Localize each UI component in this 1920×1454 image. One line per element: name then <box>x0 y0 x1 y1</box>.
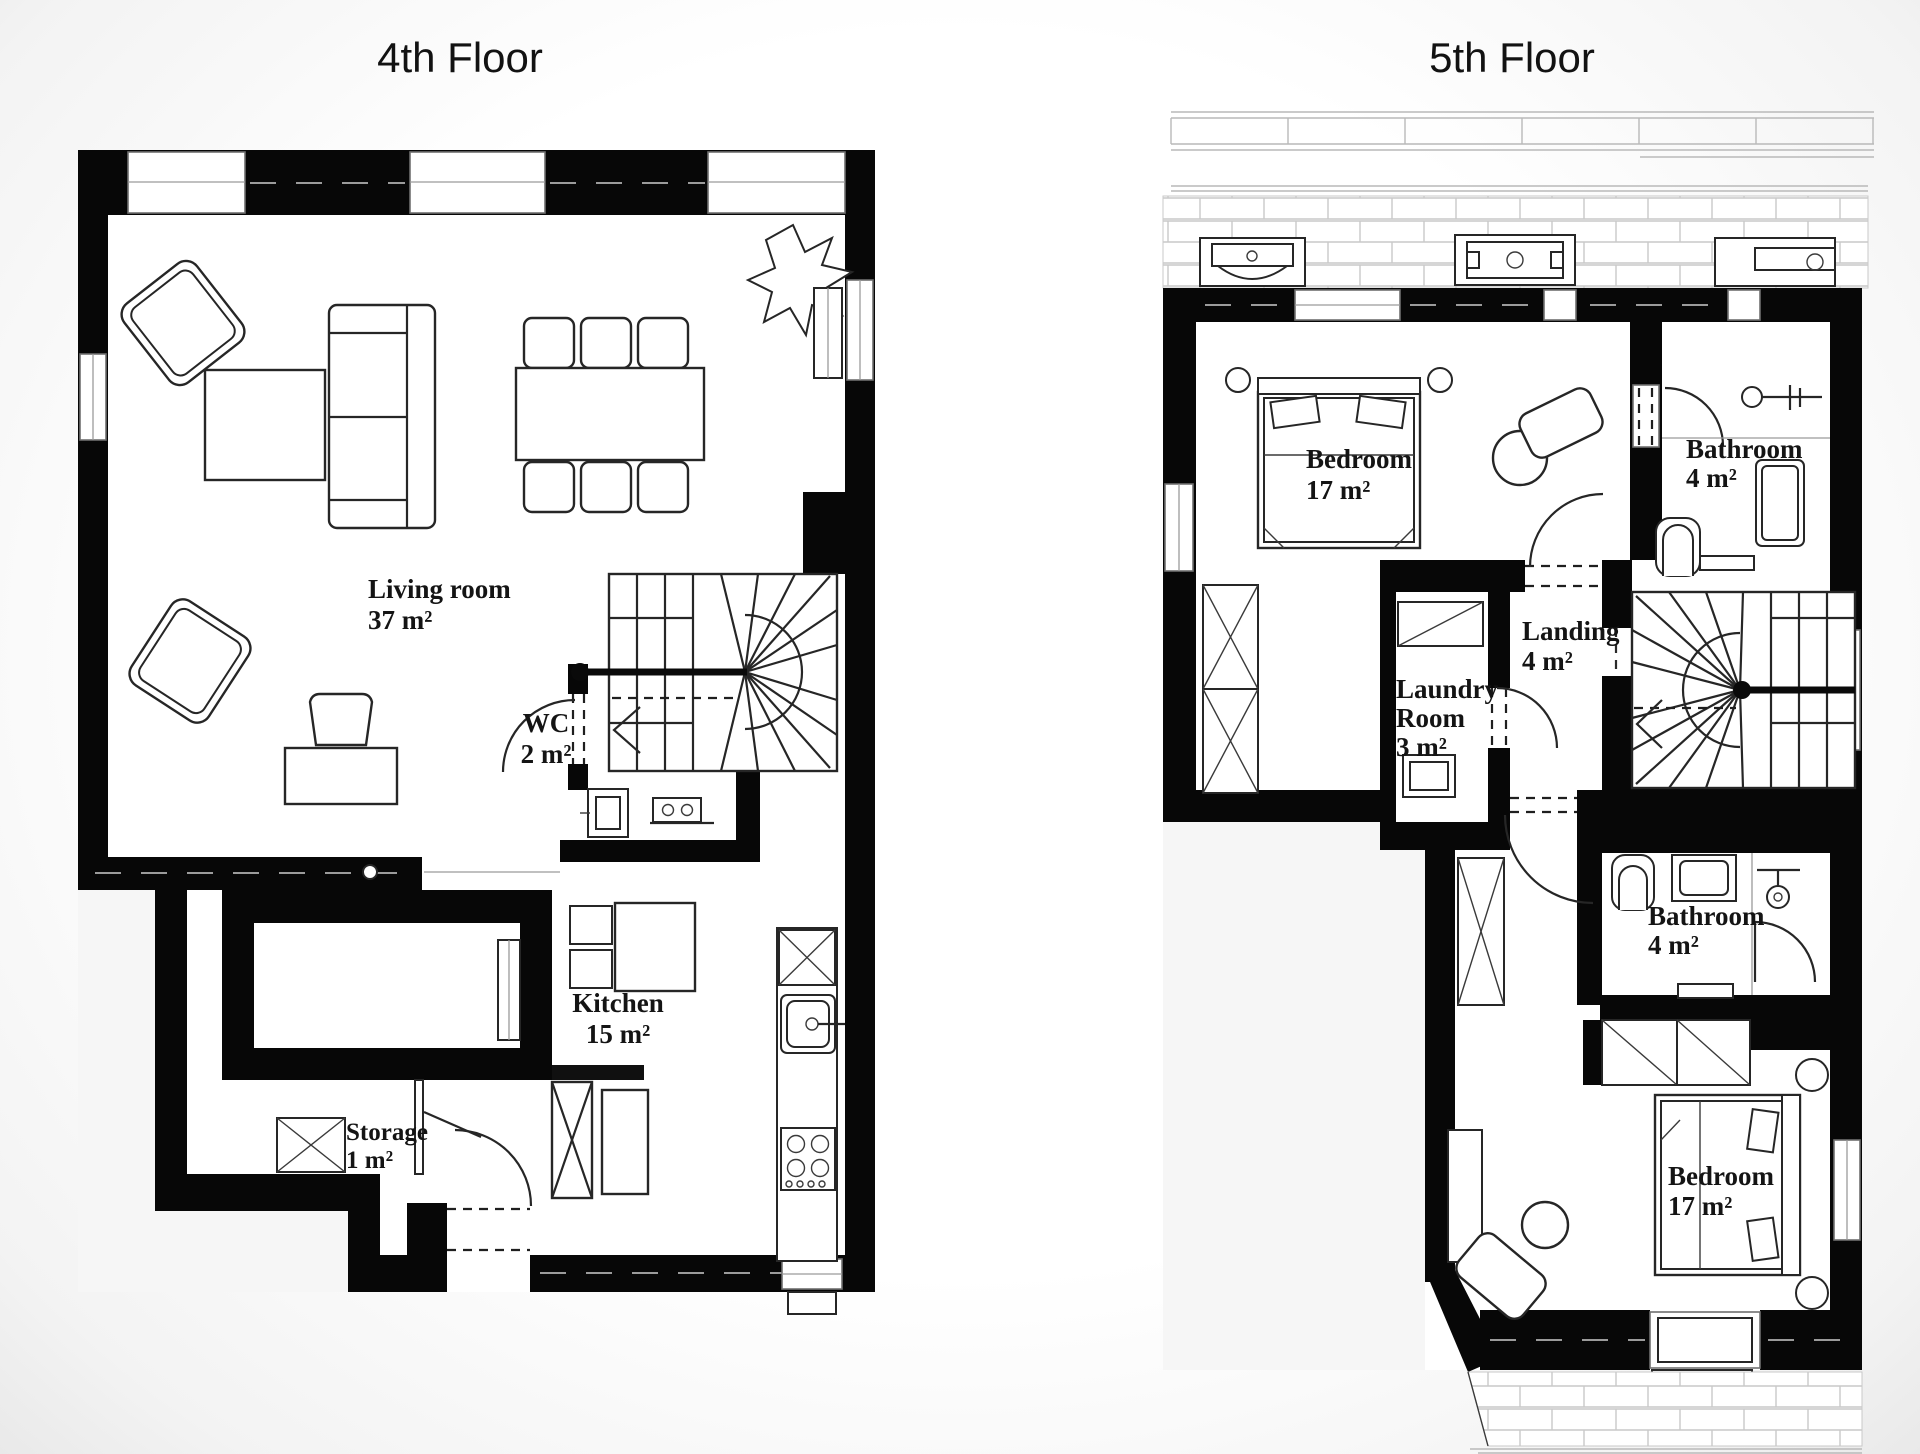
sofa <box>329 305 435 528</box>
sloped-closets <box>1602 1020 1750 1085</box>
nightstand <box>1796 1059 1828 1091</box>
kitchen-table <box>615 903 695 991</box>
kitchen-chair <box>570 906 612 944</box>
roof-windows <box>1200 235 1835 286</box>
kitchen-sink <box>781 995 845 1053</box>
round-table <box>1522 1202 1568 1248</box>
floor5-title: 5th Floor <box>1429 34 1595 81</box>
stove <box>781 1128 835 1190</box>
desk <box>285 748 397 804</box>
roof-railing <box>1171 112 1874 191</box>
hall-wardrobe <box>1458 858 1504 1005</box>
floor-plan-4th: 4th Floor <box>78 34 875 1314</box>
counter-top <box>552 1065 644 1080</box>
floor4-notch-bottom <box>155 1211 348 1292</box>
bathtub <box>1756 460 1804 546</box>
floor4-notch-left <box>78 890 155 1292</box>
wc-label: WC2 m² <box>521 708 572 769</box>
toilet <box>1656 518 1700 576</box>
tall-cabinet <box>552 1082 592 1198</box>
bedside-lamp <box>1226 368 1250 392</box>
window-box <box>788 1292 836 1314</box>
floor5-notch <box>1163 822 1425 1370</box>
nightstand <box>1796 1277 1828 1309</box>
bedside-lamp <box>1428 368 1452 392</box>
fridge <box>779 930 835 985</box>
floor-plans-canvas: 4th Floor <box>0 0 1920 1454</box>
bath-mat <box>1700 556 1754 570</box>
dining-table <box>516 368 704 460</box>
stairs-4th <box>571 574 837 771</box>
stairs-5th <box>1632 592 1855 788</box>
wardrobe-x <box>1203 585 1258 793</box>
sink <box>1672 855 1736 901</box>
coffee-table <box>205 370 325 480</box>
kitchen-chair <box>570 950 612 988</box>
cabinet <box>602 1090 648 1194</box>
desk-chair <box>310 694 372 745</box>
door-knob <box>363 865 377 879</box>
floor4-title: 4th Floor <box>377 34 543 81</box>
floor-plan-5th: 5th Floor <box>1163 34 1874 1453</box>
bath-mat <box>1678 984 1733 998</box>
roof-brick-bottom <box>1468 1372 1862 1453</box>
wc-sink <box>580 789 628 837</box>
kitchen-label: Kitchen15 m² <box>572 988 664 1049</box>
floor-plans-page: 4th Floor <box>0 0 1920 1454</box>
dining-set <box>516 318 704 512</box>
